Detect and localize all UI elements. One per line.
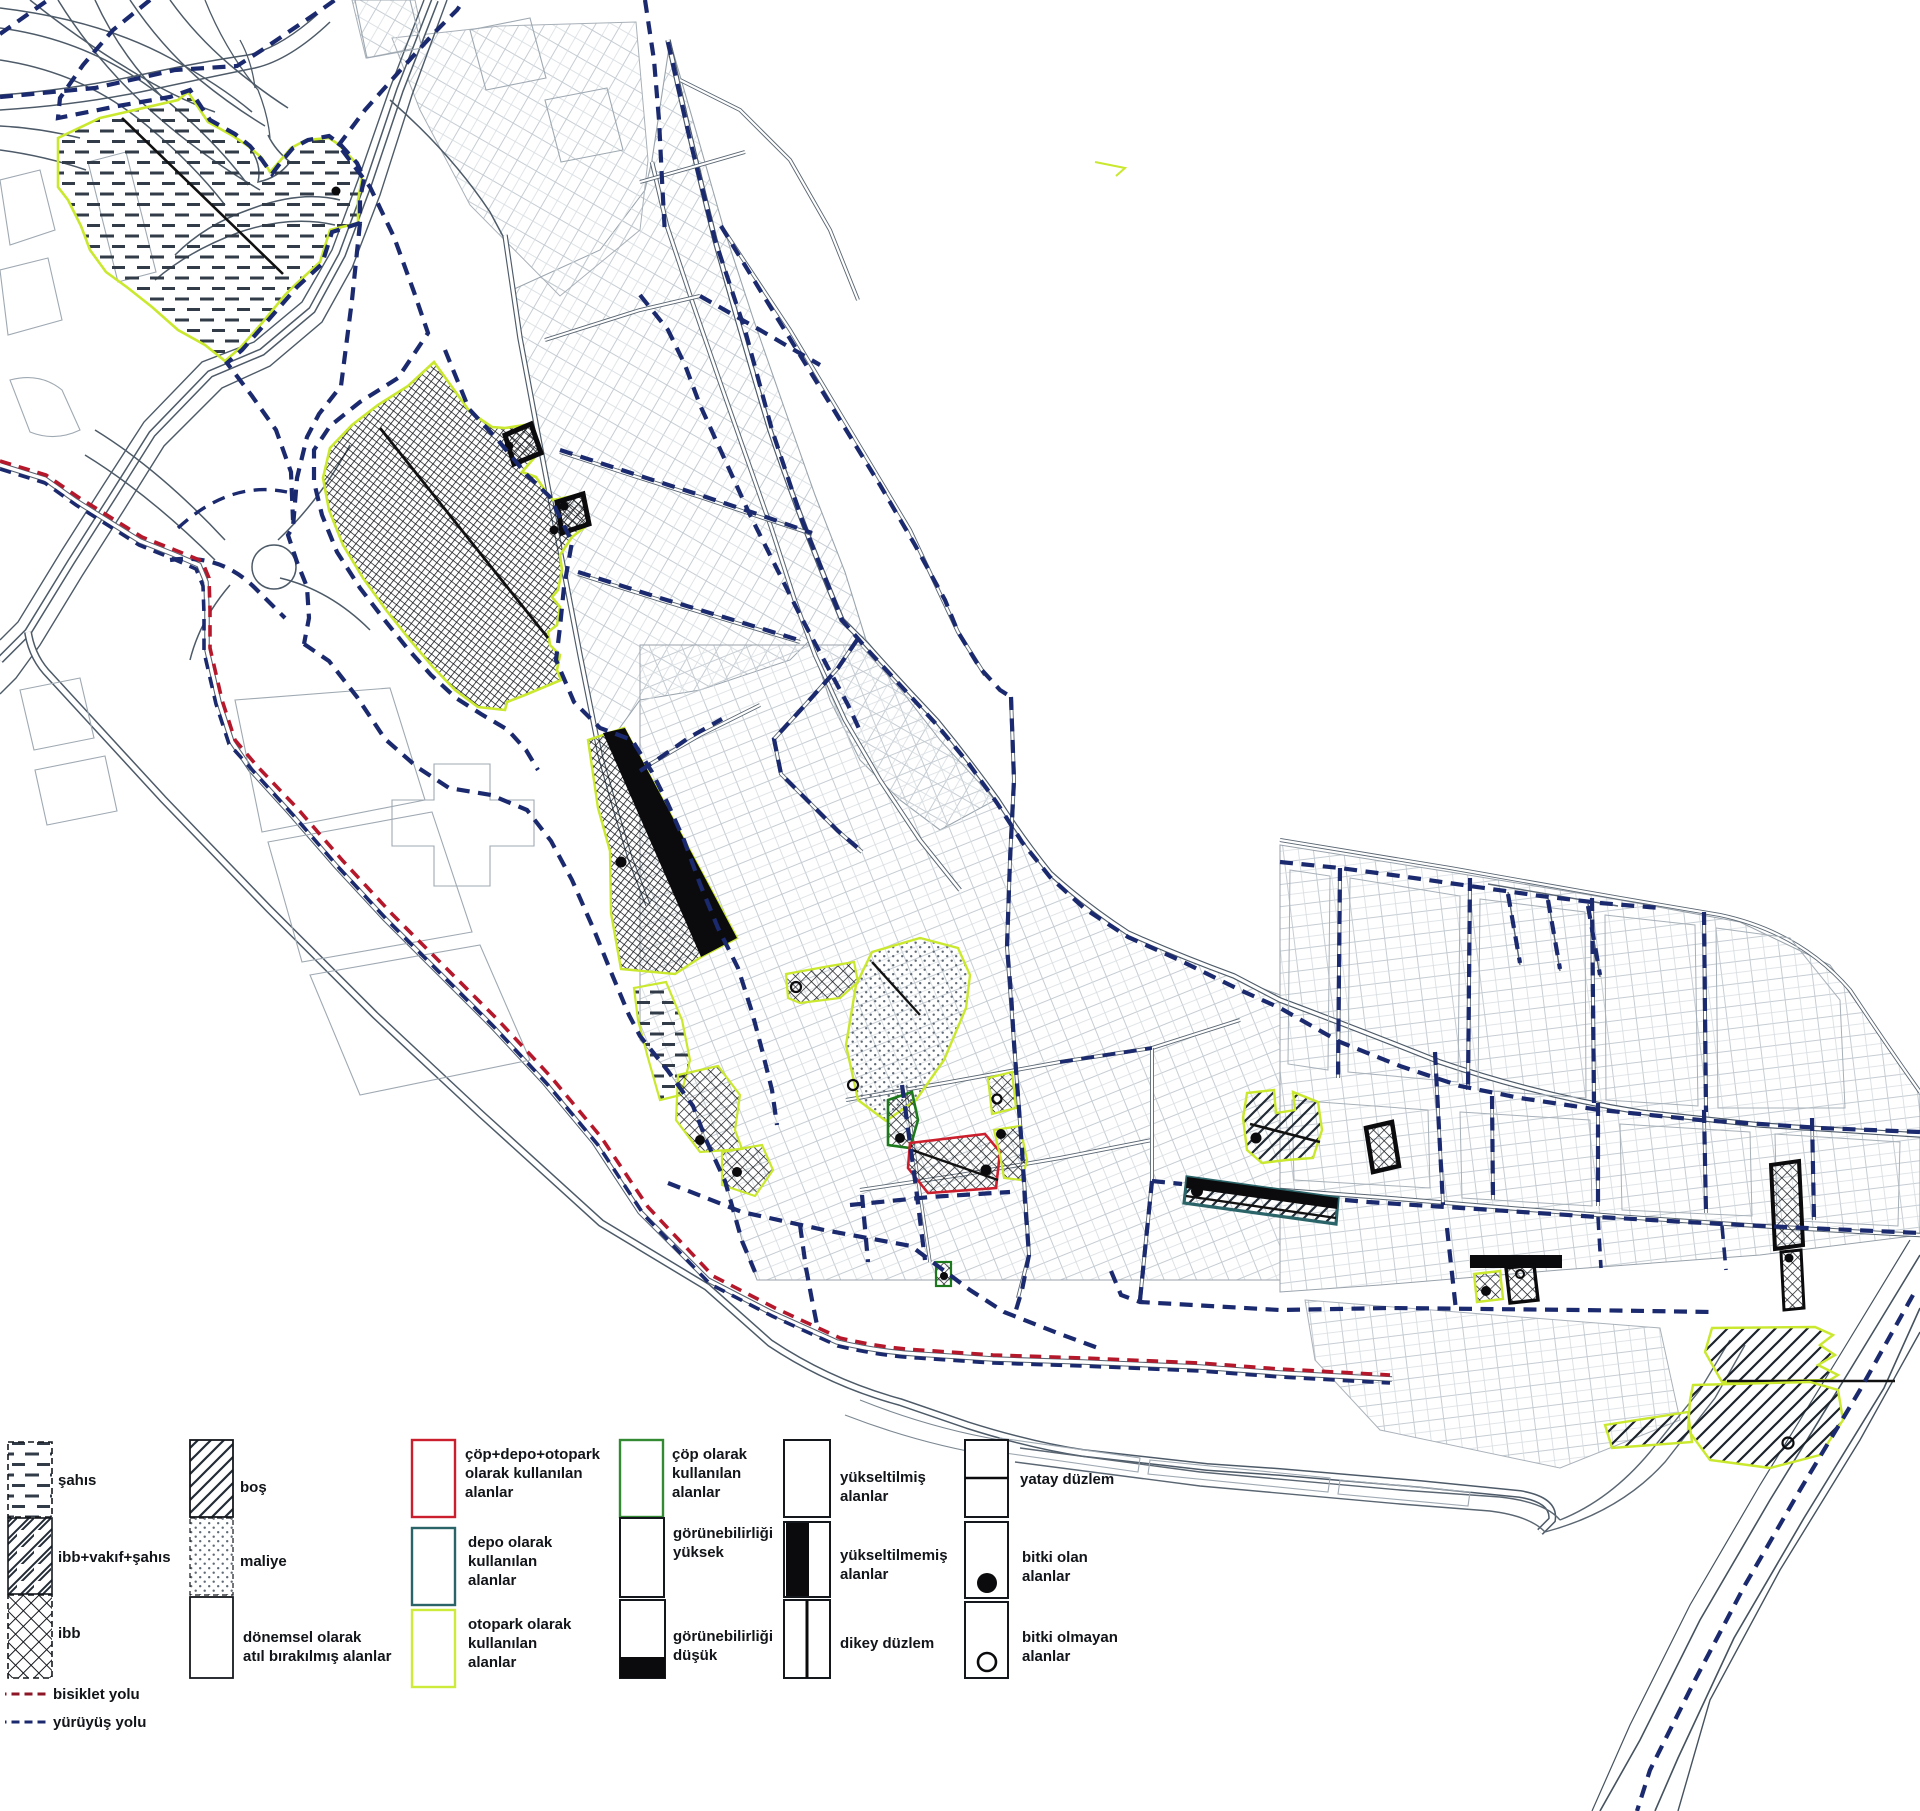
- svg-text:kullanılan: kullanılan: [468, 1635, 537, 1652]
- svg-text:bitki olan: bitki olan: [1022, 1549, 1088, 1566]
- svg-text:alanlar: alanlar: [1022, 1648, 1071, 1665]
- svg-text:görünebilirliği: görünebilirliği: [673, 1628, 773, 1645]
- svg-text:yükseltilmiş: yükseltilmiş: [840, 1469, 926, 1486]
- svg-text:yürüyüş yolu: yürüyüş yolu: [53, 1714, 146, 1731]
- svg-text:depo olarak: depo olarak: [468, 1534, 553, 1551]
- svg-text:alanlar: alanlar: [840, 1488, 889, 1505]
- svg-text:maliye: maliye: [240, 1553, 287, 1570]
- svg-text:yatay düzlem: yatay düzlem: [1020, 1471, 1114, 1488]
- svg-text:bisiklet yolu: bisiklet yolu: [53, 1686, 140, 1703]
- svg-text:kullanılan: kullanılan: [468, 1553, 537, 1570]
- svg-text:olarak kullanılan: olarak kullanılan: [465, 1465, 583, 1482]
- svg-text:çöp olarak: çöp olarak: [672, 1446, 748, 1463]
- svg-text:yüksek: yüksek: [673, 1544, 725, 1561]
- svg-text:kullanılan: kullanılan: [672, 1465, 741, 1482]
- svg-text:ibb+vakıf+şahıs: ibb+vakıf+şahıs: [58, 1549, 171, 1566]
- svg-text:alanlar: alanlar: [468, 1654, 517, 1671]
- svg-text:boş: boş: [240, 1479, 267, 1496]
- svg-text:alanlar: alanlar: [672, 1484, 721, 1501]
- svg-text:otopark olarak: otopark olarak: [468, 1616, 572, 1633]
- svg-text:yükseltilmemiş: yükseltilmemiş: [840, 1547, 948, 1564]
- svg-text:ibb: ibb: [58, 1625, 81, 1642]
- svg-text:alanlar: alanlar: [840, 1566, 889, 1583]
- svg-text:dönemsel olarak: dönemsel olarak: [243, 1629, 362, 1646]
- svg-text:çöp+depo+otopark: çöp+depo+otopark: [465, 1446, 601, 1463]
- svg-text:atıl bırakılmış alanlar: atıl bırakılmış alanlar: [243, 1648, 392, 1665]
- svg-text:düşük: düşük: [673, 1647, 718, 1664]
- svg-text:görünebilirliği: görünebilirliği: [673, 1525, 773, 1542]
- svg-text:bitki olmayan: bitki olmayan: [1022, 1629, 1118, 1646]
- svg-text:dikey düzlem: dikey düzlem: [840, 1635, 934, 1652]
- svg-text:alanlar: alanlar: [465, 1484, 514, 1501]
- svg-text:şahıs: şahıs: [58, 1472, 96, 1489]
- svg-text:alanlar: alanlar: [1022, 1568, 1071, 1585]
- svg-text:alanlar: alanlar: [468, 1572, 517, 1589]
